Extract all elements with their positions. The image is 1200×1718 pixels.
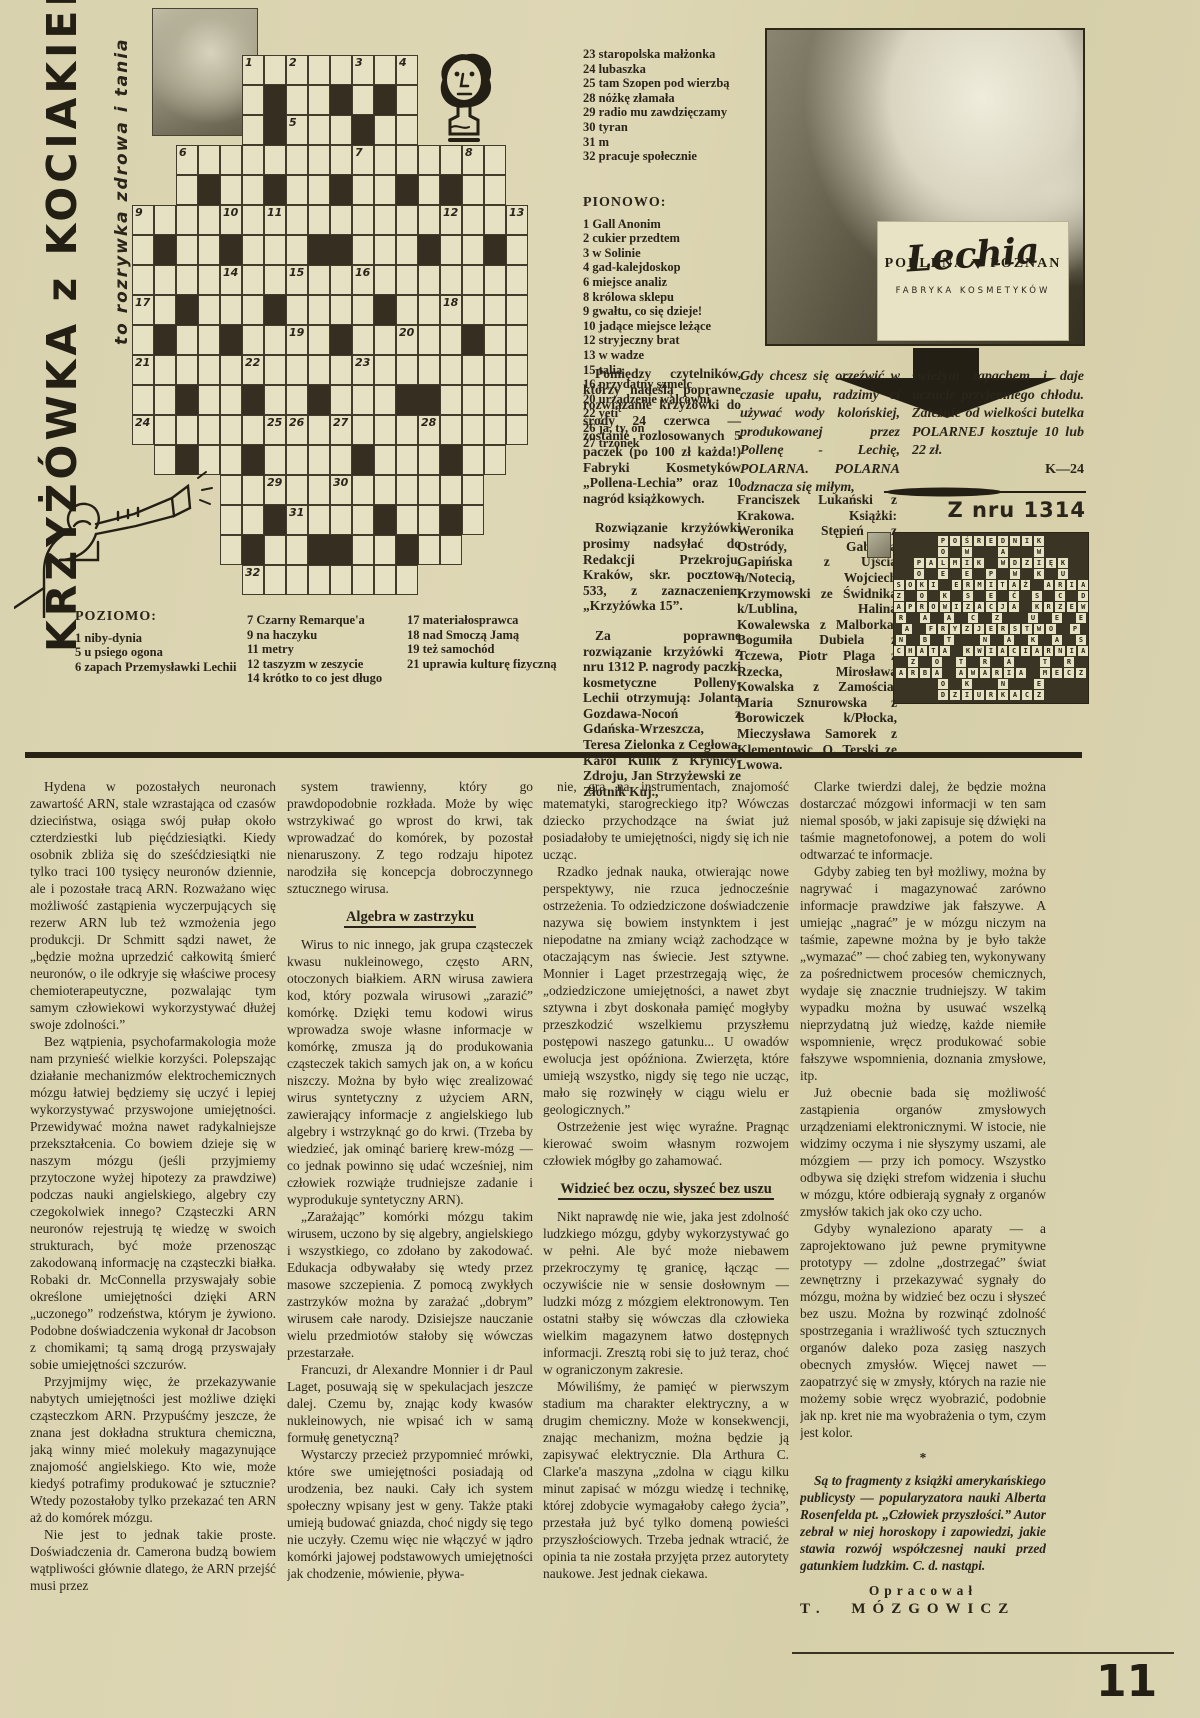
solution-letter: A <box>917 646 927 656</box>
crossword-cell <box>418 175 440 205</box>
solution-gap <box>1058 624 1068 634</box>
crossword-cell-number: 26 <box>289 417 304 428</box>
crossword-cell <box>418 445 440 475</box>
crossword-cell <box>352 325 374 355</box>
solution-gap <box>1016 635 1026 645</box>
crossword-cell: 22 <box>242 355 264 385</box>
crossword-cell <box>330 265 352 295</box>
crossword-cell <box>308 325 330 355</box>
crossword-cell <box>440 175 462 205</box>
crossword-cell <box>440 355 462 385</box>
solution-gap <box>1022 547 1032 557</box>
crossword-cell <box>264 235 286 265</box>
crossword-cell-number: 17 <box>135 297 150 308</box>
clue-item: 18 nad Smoczą Jamą <box>407 629 557 643</box>
solution-letter: Z <box>1022 558 1032 568</box>
clue-item: 13 w wadze <box>583 349 748 363</box>
crossword-cell <box>396 385 418 415</box>
solution-letter: O <box>914 569 924 579</box>
crossword-cell <box>286 535 308 565</box>
solution-letter: R <box>1064 657 1074 667</box>
crossword-cell <box>264 265 286 295</box>
crossword-cell <box>396 355 418 385</box>
solution-letter: Z <box>992 613 1002 623</box>
crossword-cell <box>418 205 440 235</box>
crossword-cell <box>264 505 286 535</box>
crossword-cell-number: 18 <box>443 297 458 308</box>
article-paragraph: * <box>800 1449 1046 1466</box>
solution-letter: K <box>974 558 984 568</box>
crossword-cell-number: 31 <box>289 507 304 518</box>
solution-letter: Z <box>950 690 960 700</box>
clue-item: 6 miejsce analiz <box>583 276 748 290</box>
solution-gap <box>1067 591 1077 601</box>
crossword-cell <box>418 355 440 385</box>
crossword-cell <box>220 175 242 205</box>
solution-letter: F <box>926 624 936 634</box>
solution-letter: P <box>938 536 948 546</box>
article-paragraph: Są to fragmenty z książki amerykańskiego… <box>800 1472 1046 1574</box>
crossword-cell <box>418 385 440 415</box>
crossword-cell <box>396 505 418 535</box>
crossword-cell: 27 <box>330 415 352 445</box>
crossword-cell <box>242 385 264 415</box>
crossword-cell: 26 <box>286 415 308 445</box>
clue-item: 5 u psiego ogona <box>75 646 243 660</box>
solution-letter: S <box>1076 635 1086 645</box>
crossword-cell <box>440 235 462 265</box>
crossword-cell <box>462 175 484 205</box>
solution-letter: I <box>1067 580 1077 590</box>
solution-gap <box>1021 602 1031 612</box>
solution-letter: D <box>1010 558 1020 568</box>
crossword-cell <box>330 295 352 325</box>
solution-letter: A <box>926 558 936 568</box>
solution-gap <box>929 591 939 601</box>
brand-subtitle: FABRYKA KOSMETYKÓW <box>878 286 1068 296</box>
solution-row: NBTNAKAS <box>893 635 1089 645</box>
crossword-cell <box>176 265 198 295</box>
solution-letter: I <box>952 602 962 612</box>
solution-letter: E <box>986 624 996 634</box>
page-number: 11 <box>1096 1656 1157 1707</box>
article-paragraph: Gdyby zabieg ten był możliwy, można by n… <box>800 863 1046 1084</box>
solution-letter: W <box>968 668 978 678</box>
crossword-cell: 6 <box>176 145 198 175</box>
clue-item: 1 niby-dynia <box>75 632 243 646</box>
solution-letter: O <box>929 602 939 612</box>
solution-letter: R <box>986 690 996 700</box>
solution-letter: I <box>929 580 939 590</box>
solution-letter: W <box>1034 624 1044 634</box>
crossword-cell-number: 3 <box>355 57 363 68</box>
article-paragraph: Ostrzeżenie jest więc wyraźne. Pragnąc k… <box>543 1118 789 1169</box>
crossword-cell <box>352 415 374 445</box>
solution-gap <box>975 591 985 601</box>
solution-letter: U <box>974 690 984 700</box>
crossword-cell-number: 19 <box>289 327 304 338</box>
crossword-cell <box>462 445 484 475</box>
solution-letter: E <box>1052 613 1062 623</box>
solution-row: CHATAKWIACIARNIA <box>893 646 1089 656</box>
crossword-cell <box>374 415 396 445</box>
crossword-cell <box>374 85 396 115</box>
clue-item: 29 radio mu zawdzięczamy <box>583 106 748 120</box>
crossword-cell <box>506 355 528 385</box>
crossword-cell <box>176 415 198 445</box>
crossword-cell <box>264 85 286 115</box>
crossword-cell <box>242 535 264 565</box>
solution-letter: D <box>1078 591 1088 601</box>
crossword-cell <box>154 205 176 235</box>
crossword-cell: 30 <box>330 475 352 505</box>
solution-gap <box>1021 591 1031 601</box>
solution-letter: A <box>944 613 954 623</box>
crossword-cell <box>242 475 264 505</box>
crossword-cell <box>154 385 176 415</box>
solution-row: ZOTRATR <box>893 657 1089 667</box>
crossword-cell <box>264 565 286 595</box>
solution-letter: U <box>1028 613 1038 623</box>
crossword-cell <box>418 235 440 265</box>
solution-letter: A <box>920 613 930 623</box>
crossword-cell <box>308 355 330 385</box>
clue-item: 14 krótko to co jest długo <box>247 672 415 686</box>
solution-letter: E <box>938 569 948 579</box>
solution-gap <box>998 569 1008 579</box>
solution-gap <box>950 547 960 557</box>
crossword-cell <box>220 355 242 385</box>
crossword-cell-number: 25 <box>267 417 282 428</box>
solution-letter: K <box>1034 569 1044 579</box>
solution-letter: Y <box>950 624 960 634</box>
solution-letter: A <box>932 668 942 678</box>
solution-row: DZIURKACZ <box>893 690 1089 700</box>
crossword-cell-number: 7 <box>355 147 363 158</box>
solution-letter: E <box>1052 668 1062 678</box>
crossword-cell <box>352 85 374 115</box>
solution-letter: K <box>963 646 973 656</box>
solution-gap <box>968 635 978 645</box>
solution-letter: R <box>938 624 948 634</box>
crossword-cell <box>330 85 352 115</box>
crossword-cell <box>440 445 462 475</box>
crossword-cell <box>506 385 528 415</box>
article-paragraph: Wirus to nic innego, jak grupa cząstecze… <box>287 936 533 1208</box>
crossword-cell <box>242 145 264 175</box>
crossword-cell <box>374 145 396 175</box>
solution-letter: M <box>1040 668 1050 678</box>
solution-letter: J <box>998 602 1008 612</box>
crossword-cell <box>154 265 176 295</box>
solution-letter: I <box>962 690 972 700</box>
crossword-cell <box>484 325 506 355</box>
crossword-cell-number: 11 <box>267 207 282 218</box>
crossword-cell <box>330 145 352 175</box>
crossword-cell <box>198 205 220 235</box>
clue-list-poziomo-a: 1 niby-dynia5 u psiego ogona6 zapach Prz… <box>75 632 243 675</box>
crossword-cell <box>462 505 484 535</box>
solution-letter: P <box>914 558 924 568</box>
crossword-cell <box>264 55 286 85</box>
crossword-cell <box>264 535 286 565</box>
solution-letter: P <box>1070 624 1080 634</box>
crossword-cell <box>440 475 462 505</box>
crossword-cell-number: 6 <box>179 147 187 158</box>
solution-letter: R <box>908 668 918 678</box>
crossword-cell <box>352 535 374 565</box>
crossword-cell <box>506 235 528 265</box>
solution-letter: R <box>998 624 1008 634</box>
solution-letter: N <box>1010 536 1020 546</box>
crossword-cell <box>176 205 198 235</box>
article-paragraph: Wystarczy przecież przypomnieć mrówki, k… <box>287 1446 533 1582</box>
crossword-cell-number: 32 <box>245 567 260 578</box>
crossword-cell: 3 <box>352 55 374 85</box>
solution-letter: E <box>1034 679 1044 689</box>
solution-letter: W <box>998 558 1008 568</box>
crossword-cell <box>220 475 242 505</box>
crossword-cell <box>286 385 308 415</box>
crossword-cell <box>484 415 506 445</box>
solution-letter: O <box>950 536 960 546</box>
crossword-cell <box>308 445 330 475</box>
solution-letter: N <box>896 635 906 645</box>
crossword-cell <box>462 265 484 295</box>
solution-letter: A <box>1044 580 1054 590</box>
magazine-page: KRZYŻÓWKA z KOCIAKIEM to rozrywka zdrowa… <box>0 0 1200 1718</box>
solution-gap <box>974 569 984 579</box>
solution-letter: A <box>940 646 950 656</box>
crossword-cell <box>308 115 330 145</box>
solution-letter: Z <box>963 602 973 612</box>
clue-item: 24 lubaszka <box>583 63 748 77</box>
footer-rule <box>792 1652 1174 1654</box>
crossword-cell <box>374 115 396 145</box>
crossword-cell <box>220 325 242 355</box>
crossword-cell <box>352 385 374 415</box>
crossword-cell <box>330 445 352 475</box>
solution-gap <box>1022 679 1032 689</box>
crossword-cell <box>264 355 286 385</box>
crossword-cell <box>418 325 440 355</box>
solution-letter: O <box>932 657 942 667</box>
crossword-cell <box>330 505 352 535</box>
solution-gap <box>932 613 942 623</box>
crossword-cell-number: 23 <box>355 357 370 368</box>
crossword-cell <box>242 175 264 205</box>
solution-letter: Ć <box>1009 591 1019 601</box>
contest-paragraph: Za poprawne rozwiązanie krzyżówki z nru … <box>583 628 741 800</box>
article-paragraph: „Zarażając” komórki mózgu takim wirusem,… <box>287 1208 533 1361</box>
solution-letter: I <box>986 646 996 656</box>
crossword-cell <box>374 505 396 535</box>
crossword-cell <box>308 85 330 115</box>
solution-letter: A <box>980 668 990 678</box>
solution-letter: H <box>906 646 916 656</box>
solution-gap <box>992 657 1002 667</box>
solution-letter: R <box>896 613 906 623</box>
solution-letter: Ż <box>1021 580 1031 590</box>
article-paragraph: Opracował <box>800 1582 1046 1599</box>
crossword-cell <box>242 505 264 535</box>
crossword-cell <box>462 385 484 415</box>
crossword-cell: 12 <box>440 205 462 235</box>
crossword-cell <box>198 265 220 295</box>
solution-letter: M <box>975 580 985 590</box>
solution-letter: T <box>929 646 939 656</box>
crossword-cell <box>506 325 528 355</box>
crossword-cell <box>374 55 396 85</box>
clue-item: 10 jadące miejsce leżące <box>583 320 748 334</box>
ad-copy-right: świeżym zapachem i daje uczucie przyjemn… <box>912 368 1084 479</box>
section-divider <box>25 752 1082 758</box>
crossword-cell <box>484 445 506 475</box>
crossword-cell <box>286 295 308 325</box>
solution-gap <box>1004 613 1014 623</box>
crossword-cell-number: 5 <box>289 117 297 128</box>
solution-grid: POŚREDNIKOWAWPALMIKWDZIĘKOEEPWKUSOKIERMI… <box>893 532 1089 704</box>
crossword-cell <box>286 205 308 235</box>
solution-letter: A <box>1009 580 1019 590</box>
crossword-cell <box>286 235 308 265</box>
solution-letter: W <box>1034 547 1044 557</box>
crossword-cell <box>220 445 242 475</box>
crossword-cell <box>264 445 286 475</box>
clue-item: 8 królowa sklepu <box>583 291 748 305</box>
crossword-cell <box>462 235 484 265</box>
clue-item: 4 gad-kalejdoskop <box>583 261 748 275</box>
solution-letter: B <box>920 668 930 678</box>
solution-gap <box>986 547 996 557</box>
crossword-cell <box>440 265 462 295</box>
clue-item: 7 Czarny Remarque'a <box>247 614 415 628</box>
solution-letter: U <box>1058 569 1068 579</box>
crossword-cell <box>308 415 330 445</box>
crossword-cell: 24 <box>132 415 154 445</box>
solution-letter: I <box>962 558 972 568</box>
crossword-cell <box>330 205 352 235</box>
article-column-2: system trawienny, który go prawdopodobni… <box>287 778 533 1644</box>
kitten-thumb-photo <box>867 532 891 558</box>
crossword-cell: 23 <box>352 355 374 385</box>
solution-row: OEEPWKU <box>893 569 1089 579</box>
article-paragraph: Clarke twierdzi dalej, że będzie można d… <box>800 778 1046 863</box>
crossword-cell <box>198 385 220 415</box>
solution-gap <box>932 635 942 645</box>
crossword-cell <box>198 175 220 205</box>
crossword-cell <box>220 145 242 175</box>
solution-letter: Ę <box>1046 558 1056 568</box>
ad-copy-right-text: świeżym zapachem i daje uczucie przyjemn… <box>912 369 1084 458</box>
crossword-cell <box>462 355 484 385</box>
crossword-cell <box>264 325 286 355</box>
crossword-cell <box>418 535 440 565</box>
solution-gap <box>1040 635 1050 645</box>
solution-letter: M <box>950 558 960 568</box>
solution-letter: S <box>963 591 973 601</box>
crossword-cell <box>396 85 418 115</box>
solution-gap <box>906 591 916 601</box>
contest-paragraph: Rozwiązanie krzyżówki prosimy nadsyłać d… <box>583 520 741 614</box>
solution-gap <box>952 591 962 601</box>
solution-letter: Z <box>908 657 918 667</box>
crossword-cell <box>440 385 462 415</box>
article-subhead: Algebra w zastrzyku <box>287 909 533 926</box>
crossword-cell: 10 <box>220 205 242 235</box>
solution-row: APROWIZACJAKRZEW <box>893 602 1089 612</box>
crossword-cell <box>308 565 330 595</box>
crossword-cell <box>308 505 330 535</box>
solution-row: ARBAAWARIAMECZ <box>893 668 1089 678</box>
article-paragraph: Nie jest to jednak takie proste. Doświad… <box>30 1526 276 1594</box>
crossword-cell <box>132 325 154 355</box>
solution-letter: E <box>952 580 962 590</box>
clue-block-poziomo: POZIOMO: 1 niby-dynia5 u psiego ogona6 z… <box>75 610 243 675</box>
crossword-cell <box>396 145 418 175</box>
crossword-cell <box>374 355 396 385</box>
crossword-cell: 21 <box>132 355 154 385</box>
crossword-cell: 18 <box>440 295 462 325</box>
crossword-cell <box>330 115 352 145</box>
solution-letter: C <box>1055 591 1065 601</box>
solution-letter: A <box>1032 646 1042 656</box>
lechia-script-logo: Lechia <box>905 229 1041 280</box>
crossword-cell <box>396 295 418 325</box>
crossword-cell <box>242 265 264 295</box>
clue-list-poziomo-c: 17 materiałosprawca18 nad Smoczą Jamą19 … <box>407 614 557 672</box>
solution-letter: A <box>1009 602 1019 612</box>
crossword-cell <box>418 505 440 535</box>
crossword-cell-number: 30 <box>333 477 348 488</box>
crossword-cell <box>132 265 154 295</box>
crossword-cell <box>374 385 396 415</box>
solution-letter: S <box>1010 624 1020 634</box>
crossword-cell <box>352 505 374 535</box>
clue-item: 9 gwałtu, co się dzieje! <box>583 305 748 319</box>
solution-letter: K <box>940 591 950 601</box>
crossword-cell-number: 4 <box>399 57 407 68</box>
crossword-cell: 19 <box>286 325 308 355</box>
solution-gap <box>1040 613 1050 623</box>
solution-heading: Z nru 1314 <box>940 498 1086 522</box>
solution-letter: T <box>956 657 966 667</box>
solution-row: ZOKSEĆSCD <box>893 591 1089 601</box>
crossword-cell <box>330 235 352 265</box>
crossword-cell <box>374 235 396 265</box>
crossword-cell <box>396 565 418 595</box>
solution-letter: S <box>1032 591 1042 601</box>
article-paragraph: Nikt naprawdę nie wie, jaka jest zdolnoś… <box>543 1208 789 1378</box>
solution-letter: R <box>917 602 927 612</box>
crossword-cell <box>462 325 484 355</box>
crossword-cell <box>330 355 352 385</box>
article-paragraph: Rzadko jednak nauka, otwierając nowe per… <box>543 863 789 1118</box>
clue-item: 12 taszyzm w zeszycie <box>247 658 415 672</box>
crossword-cell <box>330 55 352 85</box>
solution-letter: A <box>902 624 912 634</box>
crossword-cell <box>264 115 286 145</box>
crossword-cell <box>352 565 374 595</box>
crossword-cell <box>352 235 374 265</box>
clue-item: 11 metry <box>247 643 415 657</box>
solution-gap <box>952 646 962 656</box>
crossword-cell <box>220 235 242 265</box>
crossword-cell <box>198 145 220 175</box>
crossword-cell: 1 <box>242 55 264 85</box>
clue-item: 32 pracuje społecznie <box>583 150 748 164</box>
solution-letter: W <box>1010 569 1020 579</box>
